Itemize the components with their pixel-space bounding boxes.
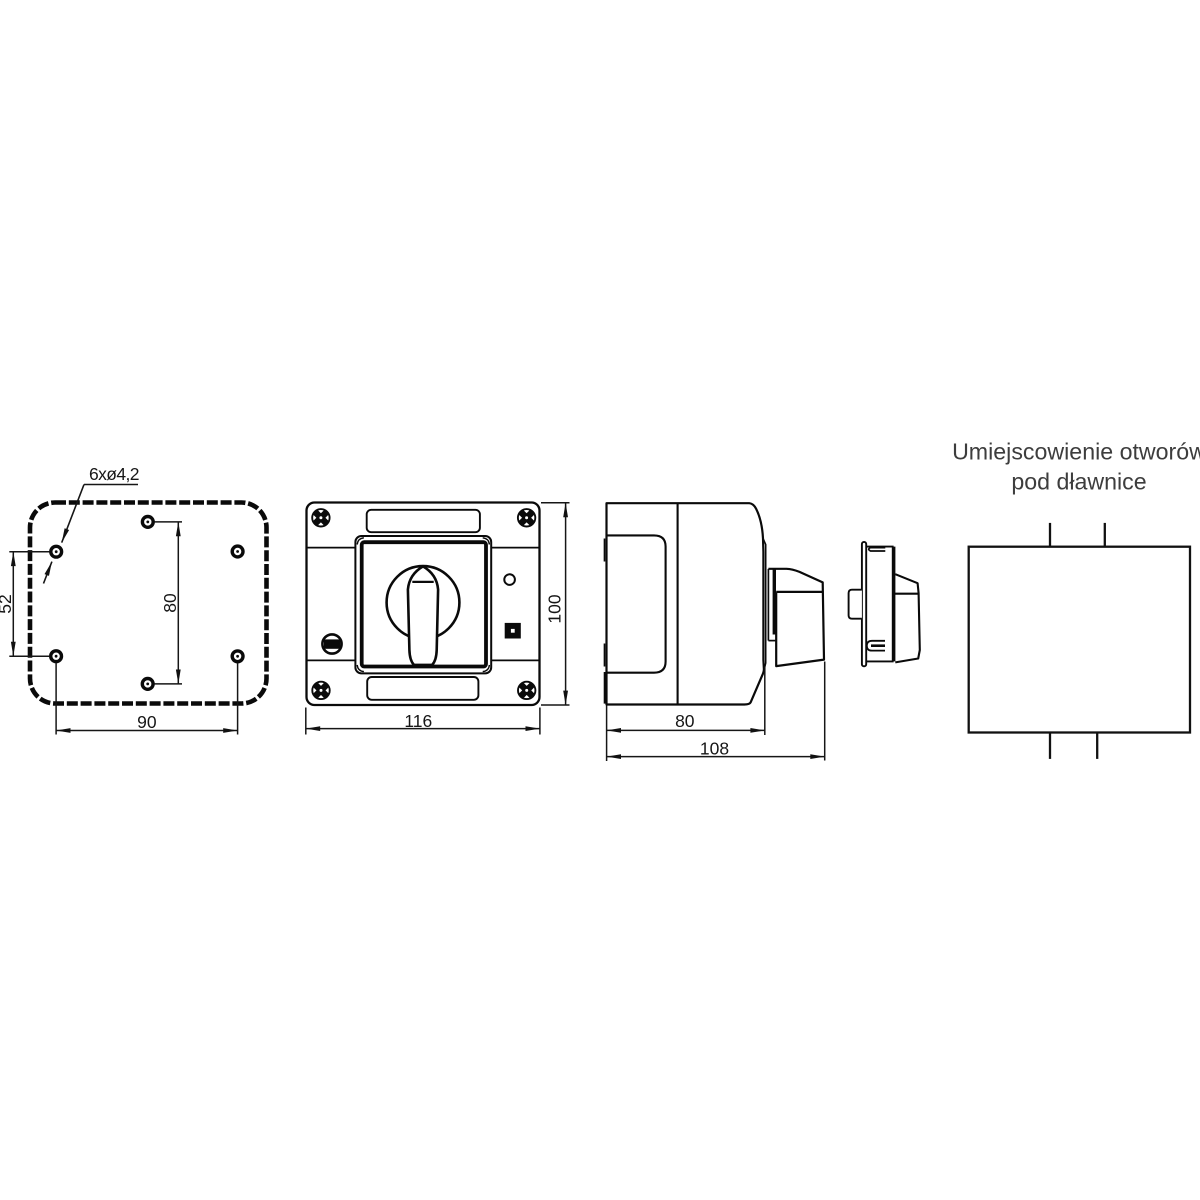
svg-text:80: 80	[160, 593, 180, 613]
svg-text:116: 116	[404, 711, 432, 731]
svg-text:6xø4,2: 6xø4,2	[89, 464, 139, 484]
svg-text:52: 52	[0, 594, 15, 613]
svg-text:pod dławnice: pod dławnice	[1011, 469, 1146, 495]
svg-text:90: 90	[137, 712, 157, 732]
svg-text:100: 100	[545, 594, 565, 623]
svg-text:108: 108	[700, 739, 729, 759]
svg-text:Umiejscowienie otworów: Umiejscowienie otworów	[952, 439, 1200, 465]
svg-text:80: 80	[675, 711, 695, 731]
